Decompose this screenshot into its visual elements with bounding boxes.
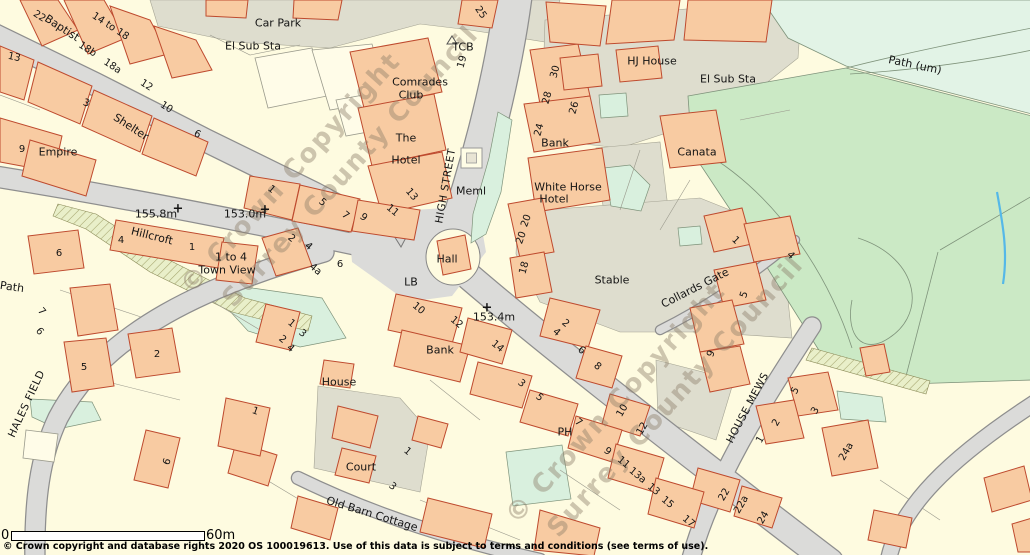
- map-canvas: [0, 0, 1030, 555]
- memorial-plinth: [467, 153, 477, 163]
- copyright-text: © Crown copyright and database rights 20…: [3, 541, 708, 552]
- scale-bar-track: [11, 531, 205, 541]
- os-map-view: © Crown Copyright Surrey County Council …: [0, 0, 1030, 555]
- hall-building: [437, 235, 471, 275]
